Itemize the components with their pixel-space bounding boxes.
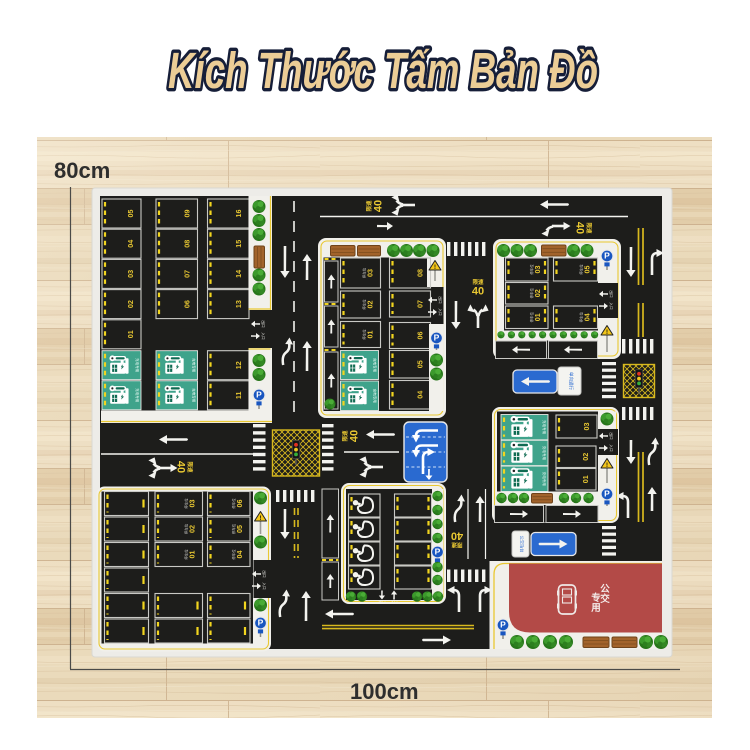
svg-text:01: 01 xyxy=(126,330,135,338)
svg-text:06: 06 xyxy=(235,500,244,508)
svg-text:停车位: 停车位 xyxy=(529,288,534,299)
svg-text:15: 15 xyxy=(234,240,243,248)
svg-text:01: 01 xyxy=(533,313,542,321)
svg-text:入口: 入口 xyxy=(609,302,614,310)
svg-text:08: 08 xyxy=(183,240,192,248)
svg-text:05: 05 xyxy=(583,266,592,274)
svg-text:用: 用 xyxy=(590,603,601,614)
svg-text:充电专用: 充电专用 xyxy=(373,389,378,404)
svg-text:P: P xyxy=(256,390,262,400)
svg-text:40: 40 xyxy=(373,200,385,212)
svg-text:充电专用: 充电专用 xyxy=(542,420,547,435)
svg-text:13: 13 xyxy=(234,300,243,308)
svg-text:!: ! xyxy=(434,265,436,271)
svg-text:出口: 出口 xyxy=(609,432,614,440)
svg-text:停车位: 停车位 xyxy=(529,264,534,275)
svg-text:07: 07 xyxy=(416,300,425,308)
svg-text:单向通行: 单向通行 xyxy=(568,372,575,390)
svg-text:P: P xyxy=(500,620,506,630)
svg-text:02: 02 xyxy=(533,289,542,297)
svg-text:100cm: 100cm xyxy=(350,679,419,704)
svg-text:停车位: 停车位 xyxy=(362,329,367,340)
svg-text:P: P xyxy=(258,618,264,628)
svg-text:11: 11 xyxy=(234,391,243,399)
svg-text:P: P xyxy=(604,251,610,261)
svg-text:Kích Thước Tấm Bản Đồ: Kích Thước Tấm Bản Đồ xyxy=(168,42,598,99)
svg-text:交: 交 xyxy=(600,593,610,605)
svg-text:P: P xyxy=(434,333,440,343)
svg-text:出口: 出口 xyxy=(262,570,267,578)
svg-text:03: 03 xyxy=(126,270,135,278)
svg-text:40: 40 xyxy=(574,222,586,234)
svg-text:入口: 入口 xyxy=(438,308,443,316)
svg-text:入口: 入口 xyxy=(390,599,398,604)
svg-text:12: 12 xyxy=(234,361,243,369)
svg-text:入口: 入口 xyxy=(609,444,614,452)
svg-text:P: P xyxy=(435,547,441,557)
svg-text:出口: 出口 xyxy=(378,599,386,604)
svg-text:充电专用: 充电专用 xyxy=(542,472,547,487)
svg-text:08: 08 xyxy=(416,269,425,277)
svg-text:充电专用: 充电专用 xyxy=(135,388,140,403)
svg-text:P: P xyxy=(604,489,610,499)
svg-text:出口: 出口 xyxy=(438,296,443,304)
svg-text:01: 01 xyxy=(366,331,375,339)
svg-text:03: 03 xyxy=(582,423,591,431)
svg-text:01: 01 xyxy=(188,551,197,559)
svg-text:充电专用: 充电专用 xyxy=(542,446,547,461)
svg-text:公交站台: 公交站台 xyxy=(519,536,526,553)
svg-text:停车位: 停车位 xyxy=(184,549,189,560)
svg-text:05: 05 xyxy=(126,210,135,218)
svg-text:停车位: 停车位 xyxy=(579,312,584,323)
svg-text:05: 05 xyxy=(235,525,244,533)
svg-text:80cm: 80cm xyxy=(54,158,110,183)
svg-text:停车位: 停车位 xyxy=(362,267,367,278)
svg-text:停车位: 停车位 xyxy=(529,312,534,323)
svg-text:停车位: 停车位 xyxy=(231,498,236,509)
svg-text:03: 03 xyxy=(188,500,197,508)
svg-text:09: 09 xyxy=(183,210,192,218)
svg-text:停车位: 停车位 xyxy=(184,523,189,534)
svg-text:充电专用: 充电专用 xyxy=(192,388,197,403)
svg-text:01: 01 xyxy=(581,475,590,483)
svg-text:充电专用: 充电专用 xyxy=(135,358,140,373)
svg-text:04: 04 xyxy=(583,313,592,321)
svg-text:03: 03 xyxy=(366,269,375,277)
svg-text:出口: 出口 xyxy=(609,290,614,298)
svg-text:02: 02 xyxy=(581,453,590,461)
svg-text:停车位: 停车位 xyxy=(579,264,584,275)
svg-text:04: 04 xyxy=(126,240,135,248)
svg-text:06: 06 xyxy=(183,300,192,308)
svg-text:!: ! xyxy=(606,330,608,336)
svg-text:入口: 入口 xyxy=(261,332,266,340)
svg-text:04: 04 xyxy=(416,391,425,399)
svg-text:入口: 入口 xyxy=(262,582,267,590)
svg-text:充电专用: 充电专用 xyxy=(373,358,378,373)
svg-text:停车位: 停车位 xyxy=(362,299,367,310)
svg-text:03: 03 xyxy=(533,266,542,274)
svg-text:06: 06 xyxy=(416,332,425,340)
svg-text:02: 02 xyxy=(188,525,197,533)
svg-text:14: 14 xyxy=(234,270,243,278)
svg-text:停车位: 停车位 xyxy=(184,498,189,509)
svg-text:40: 40 xyxy=(175,461,187,473)
svg-text:充电专用: 充电专用 xyxy=(192,358,197,373)
svg-text:!: ! xyxy=(606,463,608,469)
svg-text:16: 16 xyxy=(234,210,243,218)
svg-text:40: 40 xyxy=(451,530,463,542)
svg-text:07: 07 xyxy=(183,270,192,278)
svg-text:出口: 出口 xyxy=(261,320,266,328)
svg-text:!: ! xyxy=(260,516,262,522)
svg-text:02: 02 xyxy=(126,300,135,308)
svg-text:02: 02 xyxy=(366,301,375,309)
svg-text:05: 05 xyxy=(416,360,425,368)
svg-text:40: 40 xyxy=(472,286,484,298)
svg-text:停车位: 停车位 xyxy=(231,523,236,534)
svg-text:04: 04 xyxy=(235,551,244,559)
svg-text:停车位: 停车位 xyxy=(231,549,236,560)
svg-text:40: 40 xyxy=(349,430,361,442)
